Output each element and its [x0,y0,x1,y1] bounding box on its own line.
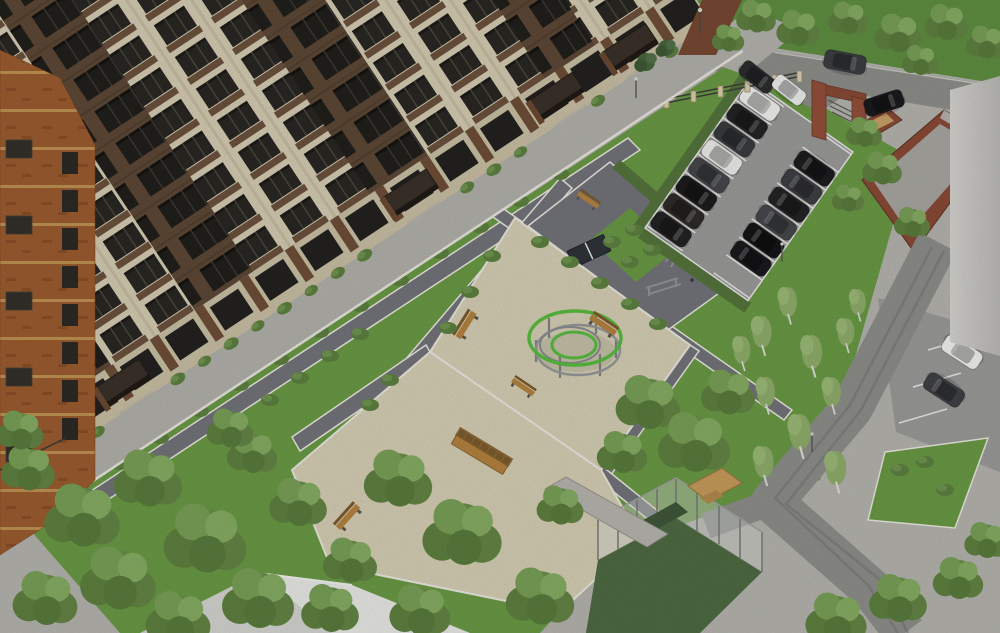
scene: Aerial rendering of a residential apartm… [0,0,1000,633]
grain-overlay [0,0,1000,633]
aerial-render [0,0,1000,633]
